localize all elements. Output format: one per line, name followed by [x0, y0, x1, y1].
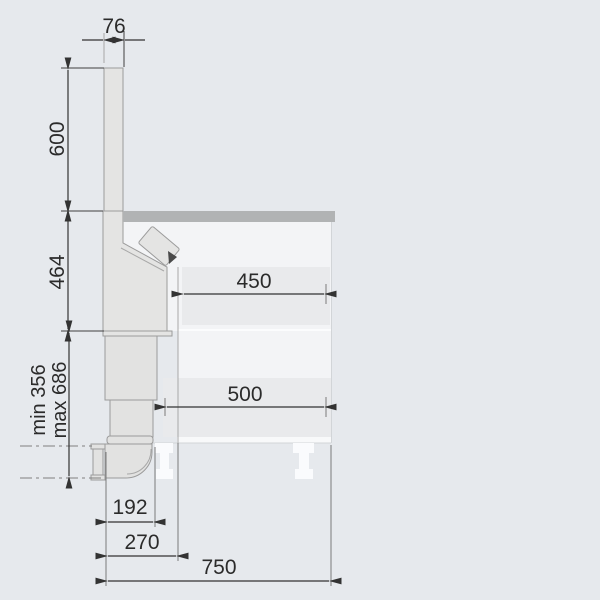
- dim-label-min: min 356: [28, 364, 50, 435]
- dim-label-76: 76: [102, 15, 125, 38]
- dim-label-464: 464: [46, 254, 69, 289]
- duct-outlet-spigot: [93, 445, 103, 479]
- dim-label-750: 750: [201, 556, 236, 579]
- hood-bottom-lip: [103, 331, 172, 336]
- dim-label-270: 270: [124, 531, 159, 554]
- blower-box: [105, 336, 157, 400]
- leg-stub: [155, 443, 173, 453]
- dim-label-600: 600: [46, 121, 69, 156]
- duct-vertical-section: [110, 400, 153, 437]
- cabinet-bottom-strip: [177, 437, 332, 443]
- countertop: [123, 211, 335, 222]
- leg-foot: [295, 469, 313, 479]
- dim-label-192: 192: [112, 496, 147, 519]
- dim-label-max: max 686: [49, 362, 71, 439]
- leg-stub: [293, 443, 314, 453]
- spigot-top-collar: [91, 444, 105, 449]
- leg-stem: [160, 452, 169, 471]
- dim-label-450: 450: [236, 270, 271, 293]
- leg-foot: [156, 469, 173, 479]
- chimney-panel: [104, 68, 123, 211]
- installation-diagram: 76 600 464 min 356 max 686 450 500 192: [0, 0, 600, 600]
- leg-stem: [299, 452, 309, 471]
- diagram-canvas: 76 600 464 min 356 max 686 450 500 192: [0, 0, 600, 600]
- duct-joint-band: [107, 436, 153, 444]
- dim-label-500: 500: [227, 383, 262, 406]
